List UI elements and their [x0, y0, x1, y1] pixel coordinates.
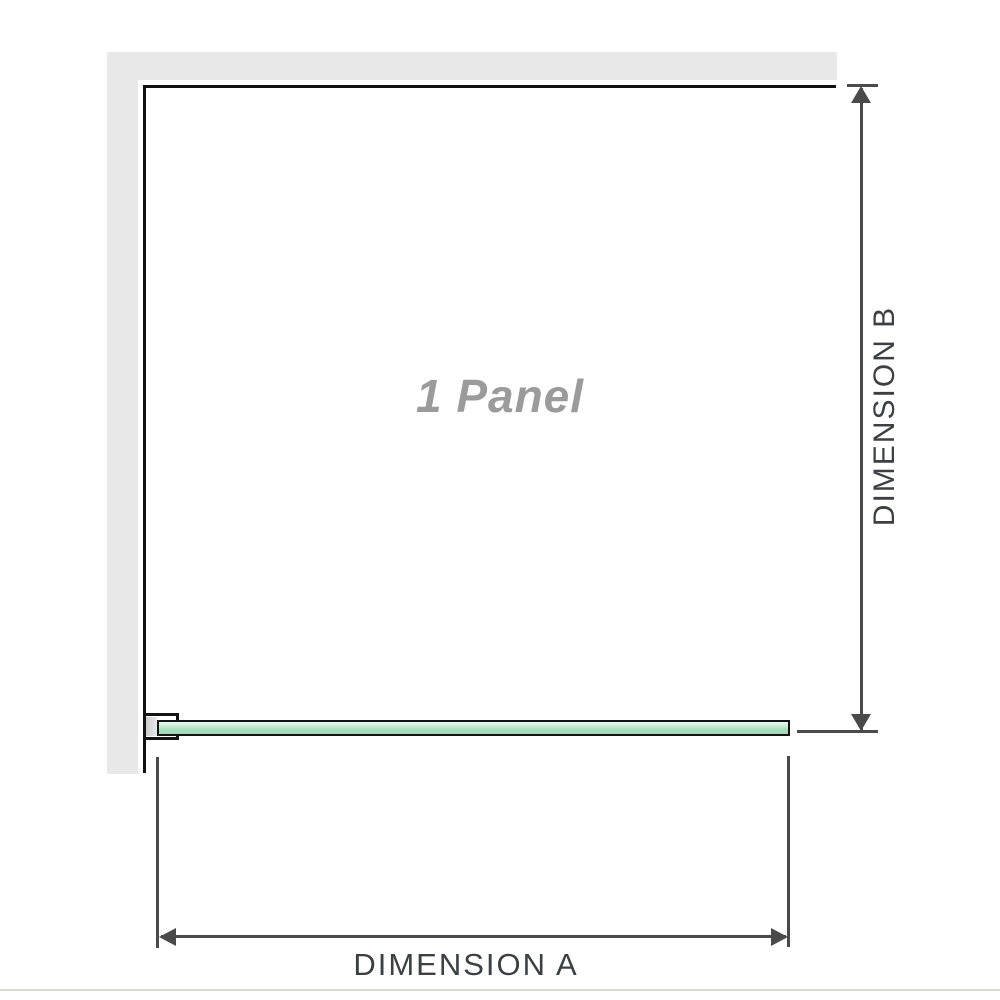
dimension-a-extension-line-right — [787, 756, 790, 947]
dimension-b-label: DIMENSION B — [868, 291, 902, 541]
dimension-b-line — [860, 88, 863, 731]
panel-outline-top-edge — [143, 85, 836, 88]
wall-top-bar — [107, 52, 837, 80]
dimension-a-line — [161, 935, 786, 938]
wall-left-bar — [107, 52, 138, 774]
wall-bracket-block — [146, 717, 157, 736]
panel-outline-left-edge — [143, 85, 146, 773]
dimension-a-extension-line-left — [156, 757, 159, 948]
bottom-border-line — [0, 989, 1000, 991]
panel-count-label: 1 Panel — [340, 368, 660, 424]
dimension-b-arrow-up-icon — [851, 86, 871, 103]
shower-panel-dimension-diagram: 1 Panel DIMENSION B DIMENSION A — [0, 0, 1000, 1000]
dimension-a-arrow-right-icon — [771, 928, 788, 946]
dimension-b-arrow-down-icon — [851, 714, 871, 731]
dimension-a-arrow-left-icon — [159, 928, 176, 946]
dimension-a-label: DIMENSION A — [341, 949, 591, 981]
glass-panel-bar — [157, 720, 790, 736]
